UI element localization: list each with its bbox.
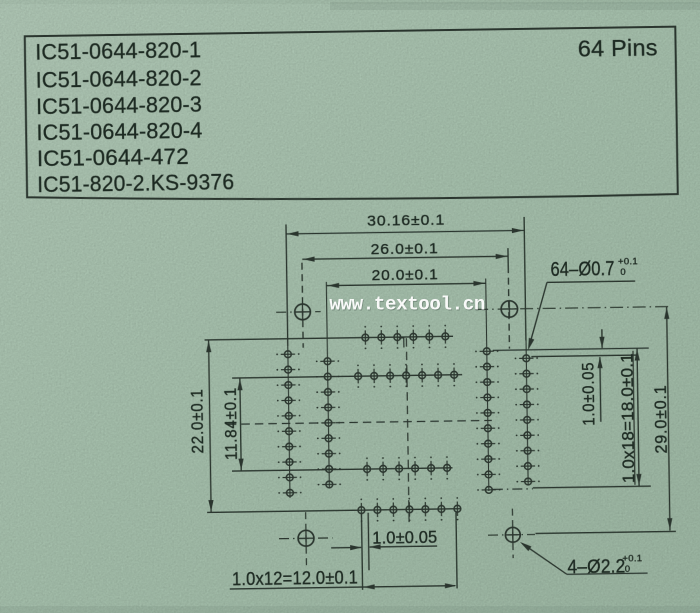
svg-text:64–Ø0.7: 64–Ø0.7	[550, 258, 614, 281]
svg-text:+0.1: +0.1	[618, 256, 638, 267]
svg-text:20.0±0.1: 20.0±0.1	[372, 266, 439, 284]
svg-text:www.textool.cn: www.textool.cn	[329, 294, 485, 316]
svg-text:IC51-820-2.KS-9376: IC51-820-2.KS-9376	[37, 169, 234, 197]
svg-text:IC51-0644-820-3: IC51-0644-820-3	[36, 92, 202, 119]
svg-text:26.0±0.1: 26.0±0.1	[371, 240, 439, 258]
svg-text:IC51-0644-820-4: IC51-0644-820-4	[36, 118, 202, 145]
svg-text:IC51-0644-820-1: IC51-0644-820-1	[35, 37, 201, 64]
svg-text:30.16±0.1: 30.16±0.1	[367, 212, 445, 230]
svg-text:0: 0	[620, 267, 626, 278]
svg-text:4–Ø2.2: 4–Ø2.2	[567, 555, 625, 578]
svg-text:1.0±0.05: 1.0±0.05	[372, 527, 437, 548]
svg-text:29.0±0.1: 29.0±0.1	[651, 384, 671, 453]
svg-text:IC51-0644-472: IC51-0644-472	[37, 144, 189, 171]
svg-text:64 Pins: 64 Pins	[578, 34, 658, 61]
svg-text:1.0x12=12.0±0.1: 1.0x12=12.0±0.1	[232, 567, 358, 589]
svg-text:1.0x18=18.0±0.1: 1.0x18=18.0±0.1	[617, 353, 638, 483]
svg-text:+0.1: +0.1	[622, 553, 642, 564]
svg-text:22.0±0.1: 22.0±0.1	[187, 388, 207, 453]
svg-text:1.0±0.05: 1.0±0.05	[578, 362, 598, 426]
svg-text:11.84±0.1: 11.84±0.1	[221, 387, 241, 460]
svg-text:IC51-0644-820-2: IC51-0644-820-2	[36, 65, 202, 92]
